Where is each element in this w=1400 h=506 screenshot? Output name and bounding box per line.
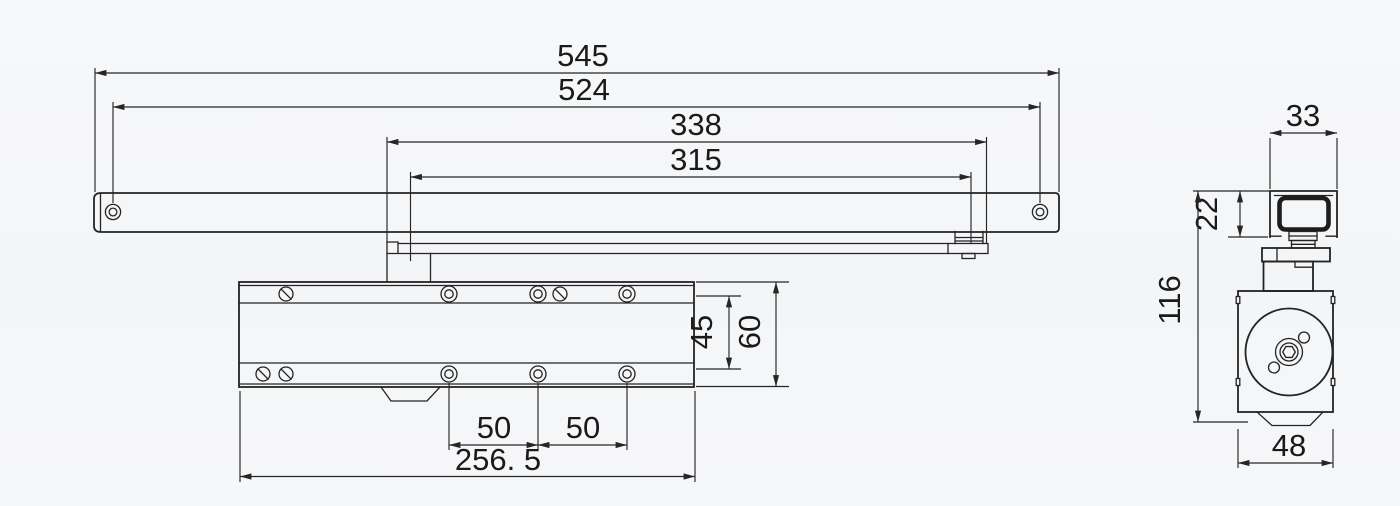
- rail-cross-section: [1270, 191, 1337, 237]
- dim-label-33: 33: [1286, 98, 1320, 133]
- slide-rail: [94, 193, 1059, 232]
- front-view: 545 524 338 315 45: [94, 38, 1059, 482]
- body-bottom-tab: [381, 387, 440, 401]
- body-hole: [530, 366, 546, 382]
- body-hole: [441, 366, 457, 382]
- dim-label-338: 338: [670, 107, 722, 142]
- dim-label-256-5: 256. 5: [455, 442, 541, 477]
- rail-slider-block: [1280, 198, 1329, 230]
- dim-label-315: 315: [670, 142, 722, 177]
- body-hole: [530, 286, 546, 302]
- dim-label-22: 22: [1189, 197, 1224, 231]
- slide-arm: [387, 232, 988, 283]
- pinion-hub: [1276, 339, 1303, 366]
- dim-rail-depth: 22: [1189, 191, 1270, 237]
- side-view: 33 22 116 48: [1152, 98, 1337, 468]
- body-screw: [279, 367, 293, 381]
- pinion-cam-circle: [1246, 309, 1333, 396]
- dim-label-48: 48: [1272, 428, 1306, 463]
- dim-label-45: 45: [684, 315, 719, 349]
- closer-body: [239, 282, 694, 401]
- dim-label-60: 60: [732, 315, 767, 349]
- dim-label-524: 524: [558, 72, 610, 107]
- closer-body-side: [1236, 291, 1335, 426]
- dim-total-length: 545: [95, 38, 1059, 192]
- rail-mount-hole-left: [105, 204, 120, 219]
- body-hole: [441, 286, 457, 302]
- dim-hole-pitch: 50 50: [449, 383, 627, 450]
- body-screw: [256, 367, 270, 381]
- drawing-canvas: 545 524 338 315 45: [0, 0, 1400, 506]
- door-closer-drawing: 545 524 338 315 45: [0, 0, 1400, 506]
- dim-label-50a: 50: [477, 410, 511, 445]
- body-hole: [619, 286, 635, 302]
- dim-body-width: 48: [1238, 428, 1333, 468]
- arm-end-tab: [962, 254, 975, 259]
- body-bottom-tab-side: [1257, 412, 1323, 426]
- valve-hole: [1299, 332, 1310, 343]
- dim-label-545: 545: [557, 38, 609, 73]
- dim-label-116: 116: [1152, 275, 1187, 324]
- dim-hole-span: 524: [113, 72, 1040, 203]
- body-screw: [553, 287, 567, 301]
- body-screw: [279, 287, 293, 301]
- valve-hole: [1269, 362, 1280, 373]
- rail-mount-hole-right: [1032, 204, 1047, 219]
- dim-label-50b: 50: [566, 410, 600, 445]
- arm-pivot-stack: [1262, 232, 1330, 292]
- dim-rail-width: 33: [1270, 98, 1337, 189]
- body-hole: [619, 366, 635, 382]
